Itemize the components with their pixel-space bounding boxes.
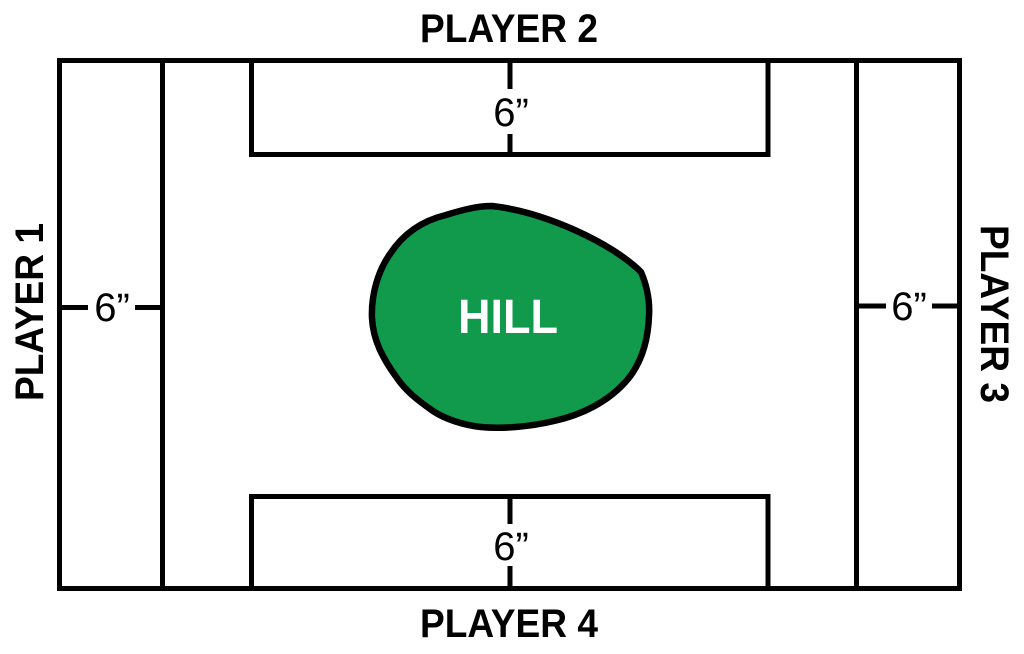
right-measurement-label: 6” [891, 285, 927, 329]
player-4-label: PLAYER 4 [420, 602, 599, 646]
hill-label: HILL [458, 291, 558, 344]
hill: HILL [372, 206, 649, 428]
player-1-label: PLAYER 1 [8, 223, 52, 401]
game-board-diagram: PLAYER 2 PLAYER 4 PLAYER 1 PLAYER 3 6” 6… [0, 0, 1024, 654]
bottom-measurement-label: 6” [493, 525, 529, 569]
top-measurement-label: 6” [493, 91, 529, 135]
board-diagram-canvas: PLAYER 2 PLAYER 4 PLAYER 1 PLAYER 3 6” 6… [0, 0, 1024, 654]
left-measurement-label: 6” [94, 286, 130, 330]
player-3-label: PLAYER 3 [972, 225, 1016, 403]
player-2-label: PLAYER 2 [420, 7, 598, 51]
